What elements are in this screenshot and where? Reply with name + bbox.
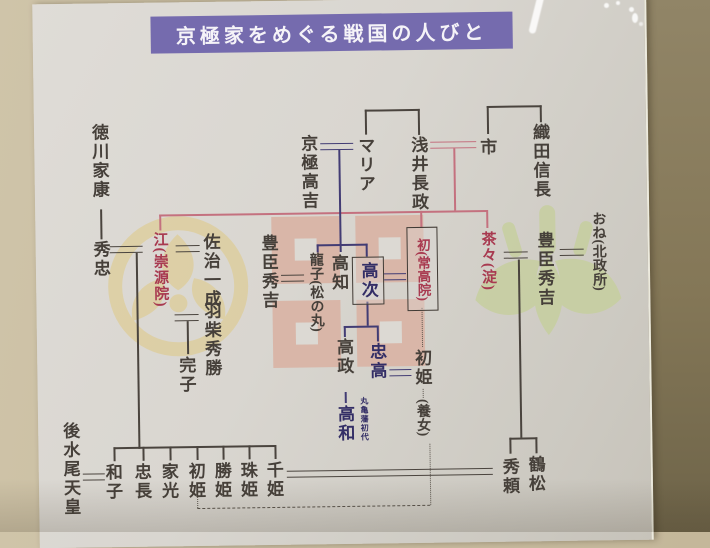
person-senhime: 千姫 <box>265 461 283 499</box>
person-box-takatsugu: 高次 <box>352 256 385 304</box>
marriage-line-go-saji <box>176 245 200 252</box>
person-azai-nagamasa: 浅井長政 <box>409 136 427 212</box>
person-tadataka: 忠高 <box>368 342 386 380</box>
person-hashiba-hidekatsu: 羽柴秀勝 <box>202 302 220 378</box>
person-maria: マリア <box>356 137 374 194</box>
bracket-drop <box>377 326 379 342</box>
person-gomizunoo-tenno: 後水尾天皇 <box>61 422 79 517</box>
marriage-line-hidetada-go <box>110 246 143 253</box>
person-go-sugenin: 江(崇源院) <box>151 231 167 307</box>
children-bracket-hideyoshi <box>509 437 537 439</box>
person-sadako: 完子 <box>177 356 195 394</box>
person-takakazu: 高和 <box>336 405 354 443</box>
marriage-line-takayoshi-maria <box>320 143 353 150</box>
azai-drop-hatsu <box>420 211 422 228</box>
bracket-drop <box>196 446 198 460</box>
person-kazuko: 和子 <box>104 463 122 501</box>
person-one-kitanomandokoro: おね(北政所) <box>590 211 605 291</box>
title-banner: 京極家をめぐる戦国の人びと <box>150 12 512 54</box>
marriage-line-chacha-hideyoshi <box>504 251 528 258</box>
glare-dot <box>604 3 609 8</box>
person-hidetada: 秀忠 <box>92 240 110 278</box>
person-oda-nobunaga: 織田信長 <box>531 123 549 199</box>
genealogy-poster: 京極家をめぐる戦国の人びと <box>32 0 654 548</box>
person-katsuhime: 勝姫 <box>213 462 231 500</box>
person-tadanaga: 忠長 <box>133 463 151 501</box>
bracket-drop <box>509 438 511 454</box>
person-tatsuko: 龍子(松の丸) <box>308 252 323 332</box>
person-takamasa: 高政 <box>335 338 353 376</box>
bracket-drop <box>222 446 224 460</box>
bracket-drop <box>142 447 144 461</box>
photo-of-sign: { "title": "京極家をめぐる戦国の人びと", "people": { … <box>0 0 710 532</box>
marriage-line-takatsugu-hatsu <box>384 273 406 280</box>
bracket-drop <box>365 110 367 135</box>
glare-dot <box>616 1 620 5</box>
marriage-line-hideyoshi-one <box>560 249 584 256</box>
person-chacha-yodo: 茶々(淀) <box>479 231 495 291</box>
bracket-drop <box>366 244 368 257</box>
marriage-line-gomizunoo-kazuko <box>83 473 105 480</box>
descent-line-takamasa-takakazu <box>345 392 347 403</box>
bracket-drop <box>535 437 537 453</box>
bracket-drop <box>113 447 115 461</box>
kyogoku-memoi-crest <box>32 0 644 4</box>
person-hatsuhime: 初姫 <box>187 462 205 500</box>
person-box-hatsu: 初(常高院) <box>406 227 438 311</box>
person-hatsu-jokoin: 初(常高院) <box>415 237 429 300</box>
bracket-drop <box>340 244 342 252</box>
marriage-line-tadataka-hatsuhime <box>389 369 411 376</box>
bracket-drop <box>274 445 276 459</box>
person-tokugawa-ieyasu: 徳川家康 <box>90 123 108 199</box>
person-iemitsu: 家光 <box>160 462 178 500</box>
page-title: 京極家をめぐる戦国の人びと <box>176 16 488 49</box>
person-hatsuhime-adopted: 初姫 <box>413 349 431 387</box>
glare-dot <box>629 7 634 12</box>
sibling-bracket-ichi-nobunaga <box>487 105 542 107</box>
bracket-drop <box>540 105 542 122</box>
marriage-line-senhime-hideyori <box>287 468 493 478</box>
person-takatsugu: 高次 <box>359 262 377 300</box>
person-ichi: 市 <box>478 138 495 157</box>
azai-drop-go <box>159 215 161 231</box>
bracket-drop <box>418 109 420 135</box>
glare-dot <box>639 22 643 26</box>
azai-drop-chacha <box>486 210 488 228</box>
tokugawa-aoi-crest <box>97 205 259 367</box>
adoption-dotted-caret <box>423 389 424 398</box>
person-saji-kazunari: 佐治一成 <box>201 233 219 309</box>
bracket-drop <box>169 446 171 460</box>
person-tsurumatsu: 鶴松 <box>527 455 545 493</box>
azai-descent-riser <box>453 148 455 210</box>
person-toyotomi-hideyoshi-left: 豊臣秀吉 <box>259 234 277 310</box>
adoption-dashed-across <box>197 505 430 509</box>
sibling-bracket-maria-nagamasa <box>365 109 420 111</box>
bracket-drop <box>248 445 250 459</box>
note-marugame-first-lord: 丸亀藩初代 <box>360 397 369 442</box>
label-adopted-daughter: (養女) <box>415 399 430 437</box>
marriage-line-hideyoshi-tatsuko <box>281 275 304 282</box>
glare-dot <box>632 13 638 23</box>
descent-line-takatsugu-children <box>366 302 368 326</box>
person-takatomo: 高知 <box>330 254 348 292</box>
bracket-drop <box>487 106 489 134</box>
kyogoku-descent-riser <box>338 150 341 244</box>
bracket-drop <box>344 326 346 337</box>
bracket-drop <box>317 244 319 252</box>
person-kyogoku-takayoshi: 京極高吉 <box>299 134 317 210</box>
person-toyotomi-hideyoshi-right: 豊臣秀吉 <box>535 231 553 307</box>
person-tamahime: 珠姫 <box>239 461 257 499</box>
person-hideyori: 秀頼 <box>501 458 519 496</box>
